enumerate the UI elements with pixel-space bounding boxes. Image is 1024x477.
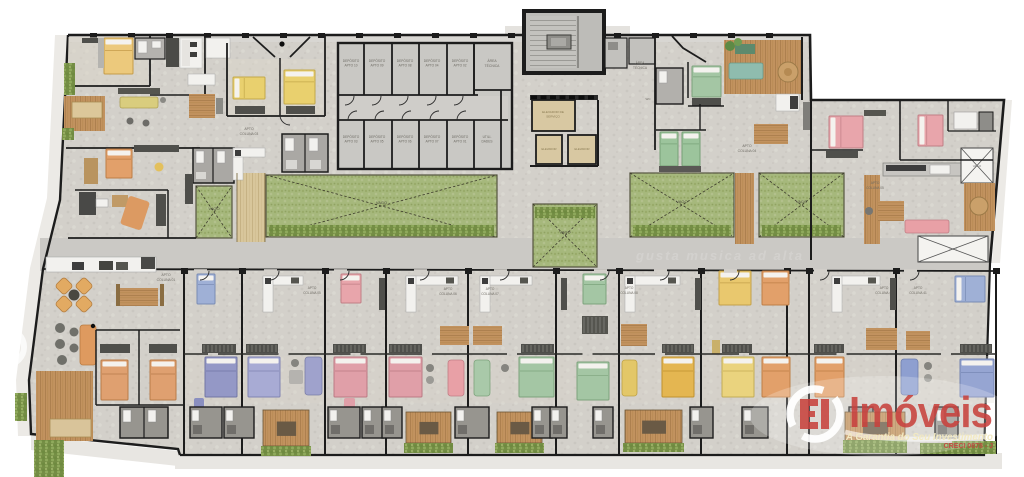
svg-text:TÉCNICA: TÉCNICA — [633, 65, 648, 70]
svg-text:VAGO: VAGO — [973, 164, 982, 168]
svg-text:DADES: DADES — [482, 140, 493, 144]
svg-text:VAGO: VAGO — [559, 230, 570, 235]
svg-text:VAGO: VAGO — [208, 206, 219, 211]
svg-text:TÉCNICA: TÉCNICA — [485, 63, 501, 68]
svg-text:APTO 08: APTO 08 — [398, 64, 411, 68]
svg-text:DEPÓSITO: DEPÓSITO — [343, 134, 360, 139]
svg-text:APTO: APTO — [625, 286, 634, 290]
svg-text:APTO: APTO — [244, 127, 254, 131]
svg-text:DEPÓSITO: DEPÓSITO — [369, 134, 386, 139]
svg-text:ÁREA: ÁREA — [636, 61, 646, 65]
svg-text:VAGO: VAGO — [796, 199, 807, 204]
svg-text:APTO 06: APTO 06 — [398, 140, 411, 144]
svg-text:ELEVADOR DE: ELEVADOR DE — [542, 110, 564, 114]
svg-text:DEPÓSITO: DEPÓSITO — [397, 134, 414, 139]
svg-text:APTO 04: APTO 04 — [425, 64, 438, 68]
svg-text:CRECI 0878 - J: CRECI 0878 - J — [944, 443, 994, 450]
svg-text:SERVIÇO: SERVIÇO — [546, 115, 560, 119]
svg-text:APTO: APTO — [161, 273, 171, 277]
svg-text:UTILI-: UTILI- — [483, 135, 492, 139]
svg-text:APTO: APTO — [444, 287, 453, 291]
svg-text:APTO: APTO — [871, 181, 880, 185]
svg-text:DEPÓSITO: DEPÓSITO — [343, 58, 360, 63]
svg-text:ELEVADOR: ELEVADOR — [541, 147, 556, 151]
svg-text:APTO 10: APTO 10 — [344, 64, 357, 68]
svg-text:gusta musica ad alta: gusta musica ad alta — [635, 248, 804, 263]
svg-text:COLUNA 03: COLUNA 03 — [240, 132, 259, 136]
svg-text:VAGO: VAGO — [949, 247, 958, 251]
svg-text:APTO: APTO — [880, 286, 889, 290]
svg-text:VAGO: VAGO — [376, 200, 387, 205]
svg-text:APTO 09: APTO 09 — [370, 64, 383, 68]
svg-text:APTO 05: APTO 05 — [370, 140, 383, 144]
svg-text:COLUNA 07: COLUNA 07 — [481, 292, 499, 296]
svg-text:APTO 03: APTO 03 — [344, 140, 357, 144]
svg-text:APTO: APTO — [308, 286, 317, 290]
svg-text:APTO 07: APTO 07 — [425, 140, 438, 144]
svg-text:COLUNA 08: COLUNA 08 — [620, 291, 638, 295]
svg-text:Imóveis: Imóveis — [849, 388, 992, 437]
svg-text:DEPÓSITO: DEPÓSITO — [369, 58, 386, 63]
svg-text:COLUNA 06: COLUNA 06 — [439, 292, 457, 296]
svg-text:DEPÓSITO: DEPÓSITO — [397, 58, 414, 63]
svg-text:ELEVADOR: ELEVADOR — [574, 147, 589, 151]
svg-text:APTO: APTO — [486, 287, 495, 291]
svg-text:A Garantia do Seu Investimento: A Garantia do Seu Investimento — [845, 432, 993, 443]
svg-text:DEPÓSITO: DEPÓSITO — [452, 58, 469, 63]
svg-text:COLUNA 41: COLUNA 41 — [909, 291, 927, 295]
svg-text:DEPÓSITO: DEPÓSITO — [452, 134, 469, 139]
svg-text:APTO: APTO — [742, 144, 752, 148]
svg-text:DEPÓSITO: DEPÓSITO — [424, 58, 441, 63]
svg-text:COLUNA 01: COLUNA 01 — [157, 278, 176, 282]
svg-text:WC: WC — [646, 97, 652, 101]
svg-text:DEPÓSITO: DEPÓSITO — [424, 134, 441, 139]
svg-text:VAGO: VAGO — [676, 199, 687, 204]
svg-text:COLUNA 05: COLUNA 05 — [303, 291, 321, 295]
svg-text:APTO: APTO — [914, 286, 923, 290]
svg-text:COLUNA 04: COLUNA 04 — [738, 149, 757, 153]
svg-text:COLUNA 05: COLUNA 05 — [866, 186, 884, 190]
svg-text:APTO 01: APTO 01 — [453, 140, 466, 144]
svg-text:ÁREA: ÁREA — [487, 59, 497, 63]
svg-text:APTO 02: APTO 02 — [453, 64, 466, 68]
